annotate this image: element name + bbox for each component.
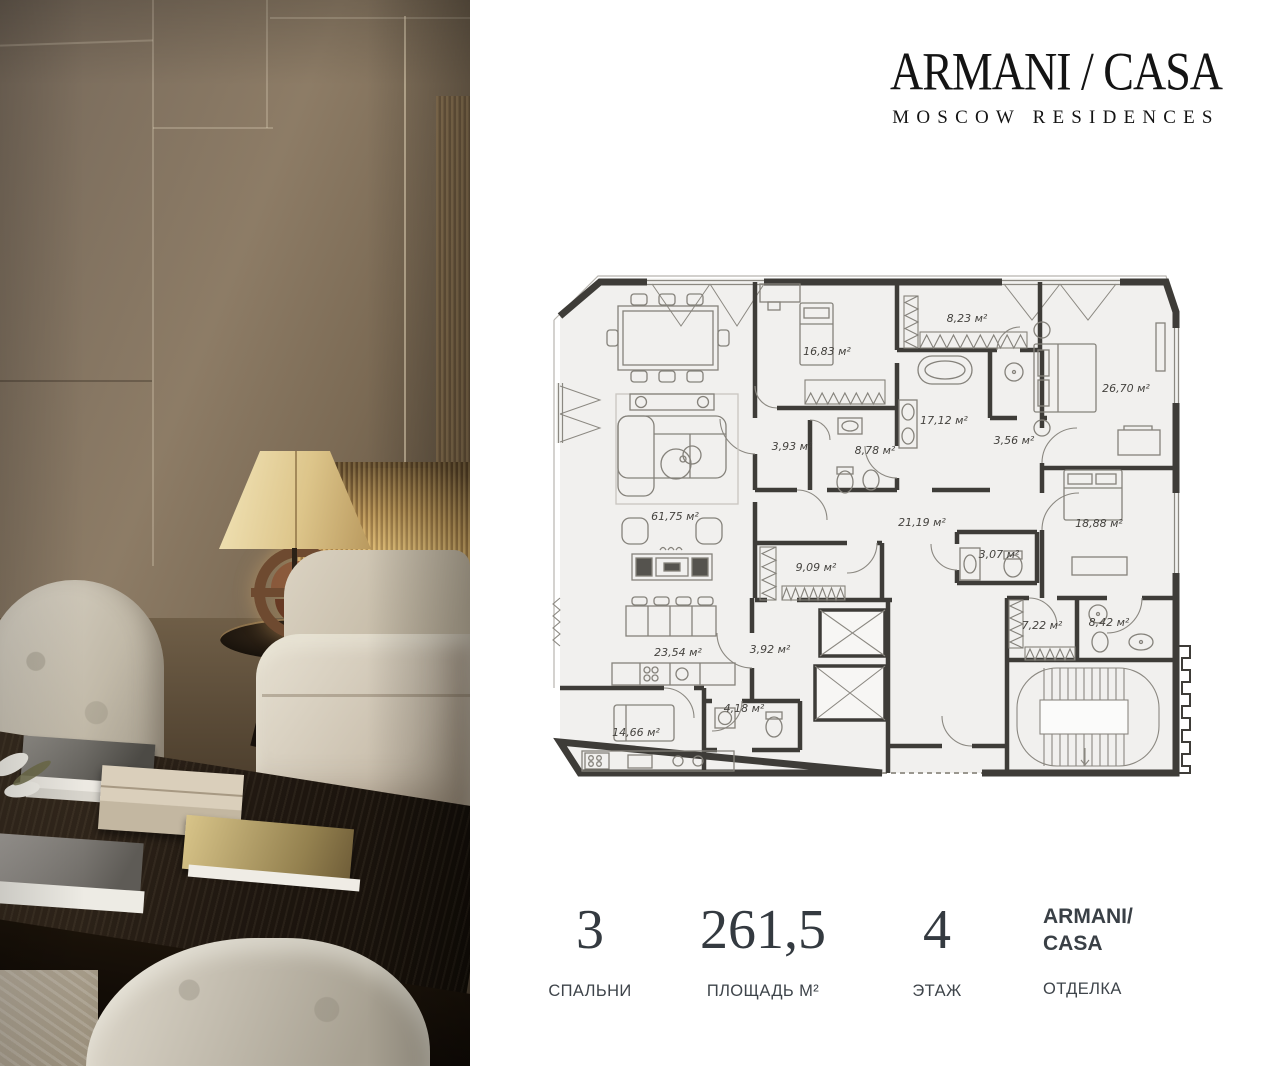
floor-plan: 61,75 м² 16,83 м² 8,23 м² 26,70 м² 3,93 … bbox=[552, 268, 1198, 793]
area-value: 261,5 bbox=[692, 902, 834, 958]
room-area-label: 7,22 м² bbox=[1022, 619, 1063, 632]
interior-photo bbox=[0, 0, 470, 1066]
elevator-shafts bbox=[815, 610, 885, 720]
panel-seam bbox=[0, 380, 152, 382]
brand-subtitle: MOSCOW RESIDENCES bbox=[880, 107, 1232, 129]
finish-value-line2: CASA bbox=[1043, 930, 1163, 957]
room-area-label: 3,93 м² bbox=[772, 440, 813, 453]
lamp-shade-seam bbox=[295, 451, 297, 549]
room-area-label: 16,83 м² bbox=[803, 345, 851, 358]
floor-label: ЭТАЖ bbox=[902, 982, 972, 1001]
room-area-label: 4,18 м² bbox=[724, 702, 765, 715]
area-label: ПЛОЩАДЬ М² bbox=[692, 982, 834, 1001]
room-area-label: 8,42 м² bbox=[1089, 616, 1130, 629]
stat-finish: ARMANI/ CASA ОТДЕЛКА bbox=[1043, 903, 1163, 999]
stat-floor: 4 ЭТАЖ bbox=[902, 902, 972, 1001]
panel-seam bbox=[270, 17, 470, 19]
panel-seam bbox=[266, 0, 268, 128]
fluted-panel-right bbox=[436, 96, 470, 482]
room-area-label: 3,07 м² bbox=[979, 548, 1020, 561]
room-area-label: 9,09 м² bbox=[796, 561, 837, 574]
room-area-label: 14,66 м² bbox=[612, 726, 660, 739]
room-area-label: 21,19 м² bbox=[898, 516, 946, 529]
bedrooms-value: 3 bbox=[542, 902, 638, 958]
stat-bedrooms: 3 СПАЛЬНИ bbox=[542, 902, 638, 1001]
stat-area: 261,5 ПЛОЩАДЬ М² bbox=[692, 902, 834, 1001]
room-area-label: 17,12 м² bbox=[920, 414, 968, 427]
panel-seam bbox=[404, 16, 406, 484]
finish-value-line1: ARMANI/ bbox=[1043, 903, 1163, 930]
listing-page: ARMANI / CASA MOSCOW RESIDENCES bbox=[0, 0, 1280, 1066]
room-area-label: 26,70 м² bbox=[1102, 382, 1150, 395]
panel-seam bbox=[153, 127, 273, 129]
floor-value: 4 bbox=[902, 902, 972, 958]
room-area-label: 3,56 м² bbox=[994, 434, 1035, 447]
rug bbox=[0, 970, 98, 1066]
sofa-seam bbox=[262, 694, 470, 697]
finish-label: ОТДЕЛКА bbox=[1043, 980, 1163, 999]
room-area-label: 61,75 м² bbox=[651, 510, 699, 523]
room-area-label: 8,78 м² bbox=[855, 444, 896, 457]
box-lid bbox=[101, 785, 243, 797]
brand-name: ARMANI / CASA bbox=[880, 40, 1232, 103]
room-area-label: 3,92 м² bbox=[750, 643, 791, 656]
bedrooms-label: СПАЛЬНИ bbox=[542, 982, 638, 1001]
room-area-label: 8,23 м² bbox=[947, 312, 988, 325]
floor-plan-svg: 61,75 м² 16,83 м² 8,23 м² 26,70 м² 3,93 … bbox=[552, 268, 1198, 793]
room-area-label: 23,54 м² bbox=[654, 646, 702, 659]
room-area-label: 18,88 м² bbox=[1075, 517, 1123, 530]
panel-seam bbox=[152, 0, 154, 566]
brand-logo: ARMANI / CASA MOSCOW RESIDENCES bbox=[880, 40, 1232, 129]
